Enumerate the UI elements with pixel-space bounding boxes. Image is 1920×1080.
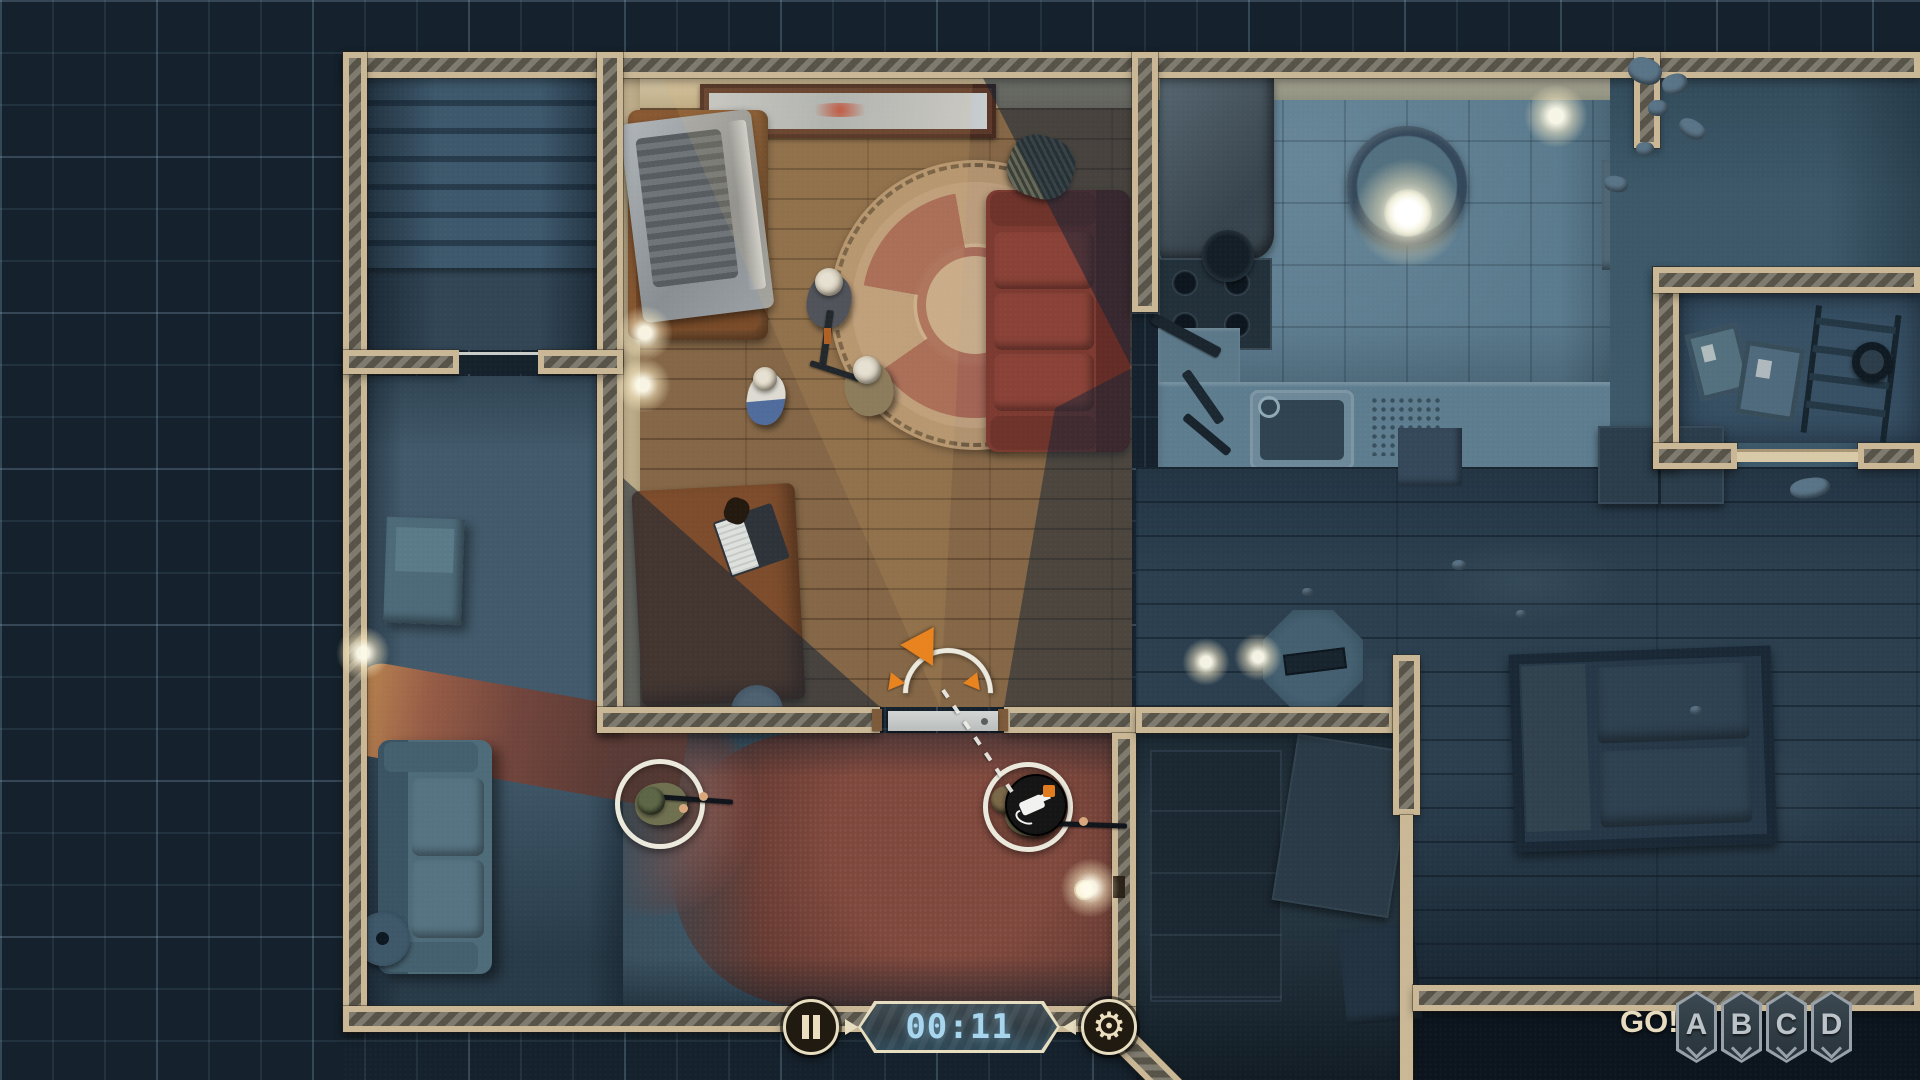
wall-west bbox=[343, 52, 367, 1032]
gear-icon: ⚙ bbox=[1092, 1007, 1126, 1045]
tool-orange-block bbox=[1043, 785, 1055, 797]
floor-kitchen[interactable] bbox=[1158, 78, 1660, 482]
picture-label bbox=[1755, 359, 1772, 379]
storage-door-sill[interactable] bbox=[1737, 449, 1858, 462]
mission-timer-inner: 00:11 bbox=[861, 1004, 1057, 1050]
keffiyeh-head bbox=[853, 356, 881, 384]
unit-civilian[interactable] bbox=[721, 351, 811, 441]
stair-doorway[interactable] bbox=[459, 352, 538, 374]
small-cabinet bbox=[1398, 428, 1462, 486]
couch-cushion bbox=[994, 293, 1094, 350]
fog-couch-cushion bbox=[412, 860, 484, 938]
wall-storage-north bbox=[1653, 267, 1920, 293]
floor-lamp bbox=[1074, 880, 1094, 900]
leaning-picture bbox=[1735, 340, 1806, 422]
door-hinge bbox=[1113, 876, 1125, 898]
picture-label bbox=[1701, 344, 1717, 362]
unit-insurgent-2[interactable] bbox=[825, 340, 915, 430]
wall-midroom-east bbox=[1393, 655, 1420, 815]
fog-couch-arm bbox=[384, 742, 478, 772]
stair-shadow bbox=[367, 78, 597, 350]
hand bbox=[699, 792, 708, 801]
plant-dot bbox=[376, 932, 389, 945]
wall-stair-south-a bbox=[343, 350, 459, 374]
table-slot bbox=[1283, 647, 1347, 675]
rubble bbox=[1302, 588, 1313, 596]
faucet-icon bbox=[1258, 396, 1280, 418]
wall-living-west bbox=[597, 52, 623, 733]
wall-storage-south-a bbox=[1653, 443, 1737, 469]
cooking-pot bbox=[1202, 230, 1254, 282]
bed bbox=[1509, 645, 1778, 852]
wall-stair-south-b bbox=[538, 350, 623, 374]
floor-staircase[interactable] bbox=[367, 78, 597, 350]
wall-living-south-a bbox=[597, 707, 880, 733]
mission-timer: 00:11 bbox=[858, 1001, 1060, 1053]
ladder-rung bbox=[1806, 401, 1886, 418]
hand bbox=[679, 804, 688, 813]
wall-storage-south-b bbox=[1858, 443, 1920, 469]
doorpost bbox=[998, 709, 1008, 731]
keffiyeh-head bbox=[815, 268, 843, 296]
bed-cushion bbox=[1595, 662, 1750, 743]
bed-headboard bbox=[1521, 664, 1591, 832]
squad-button-a[interactable]: A bbox=[1676, 991, 1717, 1063]
hand bbox=[1079, 817, 1088, 826]
stool bbox=[1852, 342, 1892, 382]
rubble bbox=[1516, 610, 1526, 618]
stool-top bbox=[1860, 350, 1884, 374]
rubble bbox=[1636, 142, 1654, 156]
wall-midroom-north bbox=[1136, 707, 1395, 733]
midroom-wardrobe bbox=[1150, 750, 1282, 1002]
ladder-rung bbox=[1816, 317, 1896, 334]
civilian-head bbox=[753, 367, 777, 391]
ladder bbox=[1795, 304, 1910, 443]
squad-button-d[interactable]: D bbox=[1811, 991, 1852, 1063]
step-back-button[interactable] bbox=[1063, 1019, 1076, 1035]
wall-midroom-east-thin bbox=[1400, 815, 1413, 1080]
unit-swat-officer-1[interactable] bbox=[615, 759, 705, 849]
wall-entry-east bbox=[1112, 733, 1136, 1006]
rubble bbox=[1452, 560, 1466, 570]
game-viewport: 00:11 ⚙ GO! A B C D bbox=[0, 0, 1920, 1080]
fog-couch-cushion bbox=[412, 778, 484, 856]
unit-insurgent-1[interactable] bbox=[785, 252, 875, 342]
dust-patch bbox=[1426, 537, 1626, 627]
wall-living-south-b bbox=[1004, 707, 1136, 733]
squad-button-b[interactable]: B bbox=[1721, 991, 1762, 1063]
octagon-table bbox=[1263, 610, 1363, 710]
doorpost bbox=[872, 709, 882, 731]
breach-tool-badge-icon[interactable] bbox=[1005, 774, 1067, 836]
crate-top bbox=[395, 527, 455, 573]
bed-cushion bbox=[1598, 746, 1753, 827]
settings-button[interactable]: ⚙ bbox=[1081, 999, 1137, 1055]
kitchen-table bbox=[1347, 126, 1467, 246]
pause-button[interactable] bbox=[783, 999, 839, 1055]
squad-button-c[interactable]: C bbox=[1766, 991, 1807, 1063]
rubble bbox=[1690, 706, 1702, 715]
sink bbox=[1250, 390, 1354, 470]
wall-kitchen-divider bbox=[1132, 52, 1158, 312]
burner bbox=[1172, 270, 1198, 296]
rubble bbox=[1648, 100, 1668, 116]
pause-icon bbox=[802, 1015, 820, 1039]
helmet bbox=[637, 787, 665, 815]
hall-crate bbox=[383, 517, 465, 626]
wall-storage-west bbox=[1653, 267, 1679, 469]
go-label: GO! bbox=[1620, 1004, 1679, 1040]
mission-timer-value: 00:11 bbox=[905, 1007, 1012, 1047]
unit-swat-officer-2[interactable] bbox=[983, 762, 1073, 852]
step-forward-button[interactable] bbox=[845, 1019, 858, 1035]
